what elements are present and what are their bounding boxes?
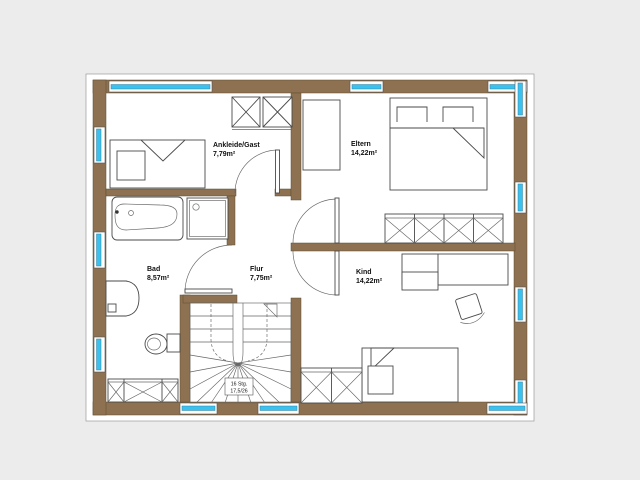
wall-kind-west: [291, 298, 301, 402]
wall-bad-stairs: [180, 295, 190, 402]
room-label-flur: Flur: [250, 266, 263, 273]
floor-plan-svg: 16 Stg. 17,5/26 Ankleide/Gast 7,79m² Elt…: [0, 0, 640, 480]
room-label-ankleide: Ankleide/Gast: [213, 142, 260, 149]
sink: [106, 281, 139, 316]
door-leaf: [185, 289, 232, 293]
window-top-2: [350, 81, 383, 92]
window-top-1: [109, 81, 212, 92]
room-label-kind: Kind: [356, 269, 372, 276]
stair-label-line2: 17,5/26: [230, 389, 247, 395]
window-right-eltern: [515, 182, 526, 213]
bathtub-tap: [115, 210, 118, 213]
door-leaf: [335, 198, 339, 243]
door-leaf: [276, 150, 280, 193]
bathtub: [112, 197, 183, 240]
room-area-kind: 14,22m²: [356, 278, 383, 285]
room-area-flur: 7,75m²: [250, 275, 273, 282]
room-label-bad: Bad: [147, 266, 160, 273]
toilet: [145, 334, 180, 354]
wall-bottom: [93, 402, 527, 415]
room-area-bad: 8,57m²: [147, 275, 170, 282]
wall-eltern-kind: [291, 243, 515, 251]
wall-flur-stairs-stub: [183, 295, 237, 303]
shower: [187, 198, 228, 239]
desk-drawer-unit: [402, 272, 438, 290]
window-left-bad-2: [94, 337, 105, 372]
wardrobe: [301, 368, 362, 403]
sideboard-wardrobe: [385, 214, 503, 243]
floor-plan: 16 Stg. 17,5/26 Ankleide/Gast 7,79m² Elt…: [0, 0, 640, 480]
window-bottom-stairs-right: [258, 403, 299, 414]
window-left-ankleide: [94, 127, 105, 163]
bath-cabinet: [108, 379, 178, 402]
stair-label-line1: 16 Stg.: [231, 382, 247, 388]
pillow: [117, 151, 145, 180]
window-left-bad-1: [94, 232, 105, 268]
window-bottom-corner: [487, 403, 527, 414]
door-leaf: [335, 251, 339, 295]
room-area-eltern: 14,22m²: [351, 150, 378, 157]
room-area-ankleide: 7,79m²: [213, 151, 236, 158]
window-right-kind: [515, 287, 526, 322]
room-label-eltern: Eltern: [351, 141, 371, 148]
wall-right: [514, 80, 527, 415]
tall-cabinet: [303, 100, 340, 170]
wall-ankleide-south: [106, 189, 236, 196]
pillow: [368, 366, 393, 394]
wall-ankleide-eltern: [291, 93, 301, 200]
window-right-corner-top: [515, 81, 526, 117]
window-bottom-stairs-left: [180, 403, 217, 414]
